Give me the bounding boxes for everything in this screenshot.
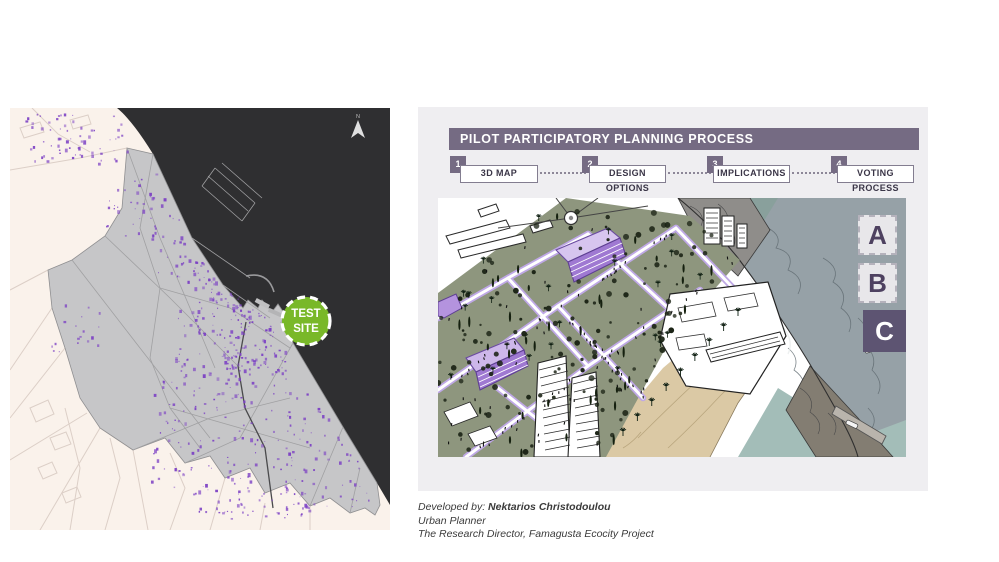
step-connector: [792, 172, 835, 174]
svg-text:SITE: SITE: [293, 323, 319, 335]
step-connector: [540, 172, 586, 174]
author-name: Nektarios Christodoulou: [488, 501, 611, 513]
credits-line-role: Urban Planner: [418, 515, 654, 529]
step-voting-process[interactable]: VOTING PROCESS: [837, 165, 914, 183]
option-a-badge[interactable]: A: [858, 215, 897, 255]
test-site-badge[interactable]: TEST SITE: [282, 297, 330, 345]
svg-text:N: N: [356, 114, 360, 120]
panel-title: PILOT PARTICIPATORY PLANNING PROCESS: [449, 128, 919, 150]
planning-process-panel: PILOT PARTICIPATORY PLANNING PROCESS 1 3…: [418, 107, 928, 491]
step-implications[interactable]: IMPLICATIONS: [713, 165, 790, 183]
credits: Developed by: Nektarios Christodoulou Ur…: [418, 501, 654, 542]
credits-line-developed-by: Developed by: Nektarios Christodoulou: [418, 501, 654, 515]
option-c-badge[interactable]: C: [863, 310, 906, 352]
step-connector: [668, 172, 711, 174]
step-design-options[interactable]: DESIGN OPTIONS: [589, 165, 666, 183]
slide: N TEST SITE PILOT PARTICIPATORY PLANNING…: [0, 0, 999, 562]
step-3d-map[interactable]: 3D MAP: [460, 165, 538, 183]
3d-map-illustration: [438, 198, 906, 457]
svg-text:TEST: TEST: [291, 308, 320, 320]
credits-line-title: The Research Director, Famagusta Ecocity…: [418, 528, 654, 542]
city-map: N TEST SITE: [10, 108, 390, 530]
option-b-badge[interactable]: B: [858, 263, 897, 303]
